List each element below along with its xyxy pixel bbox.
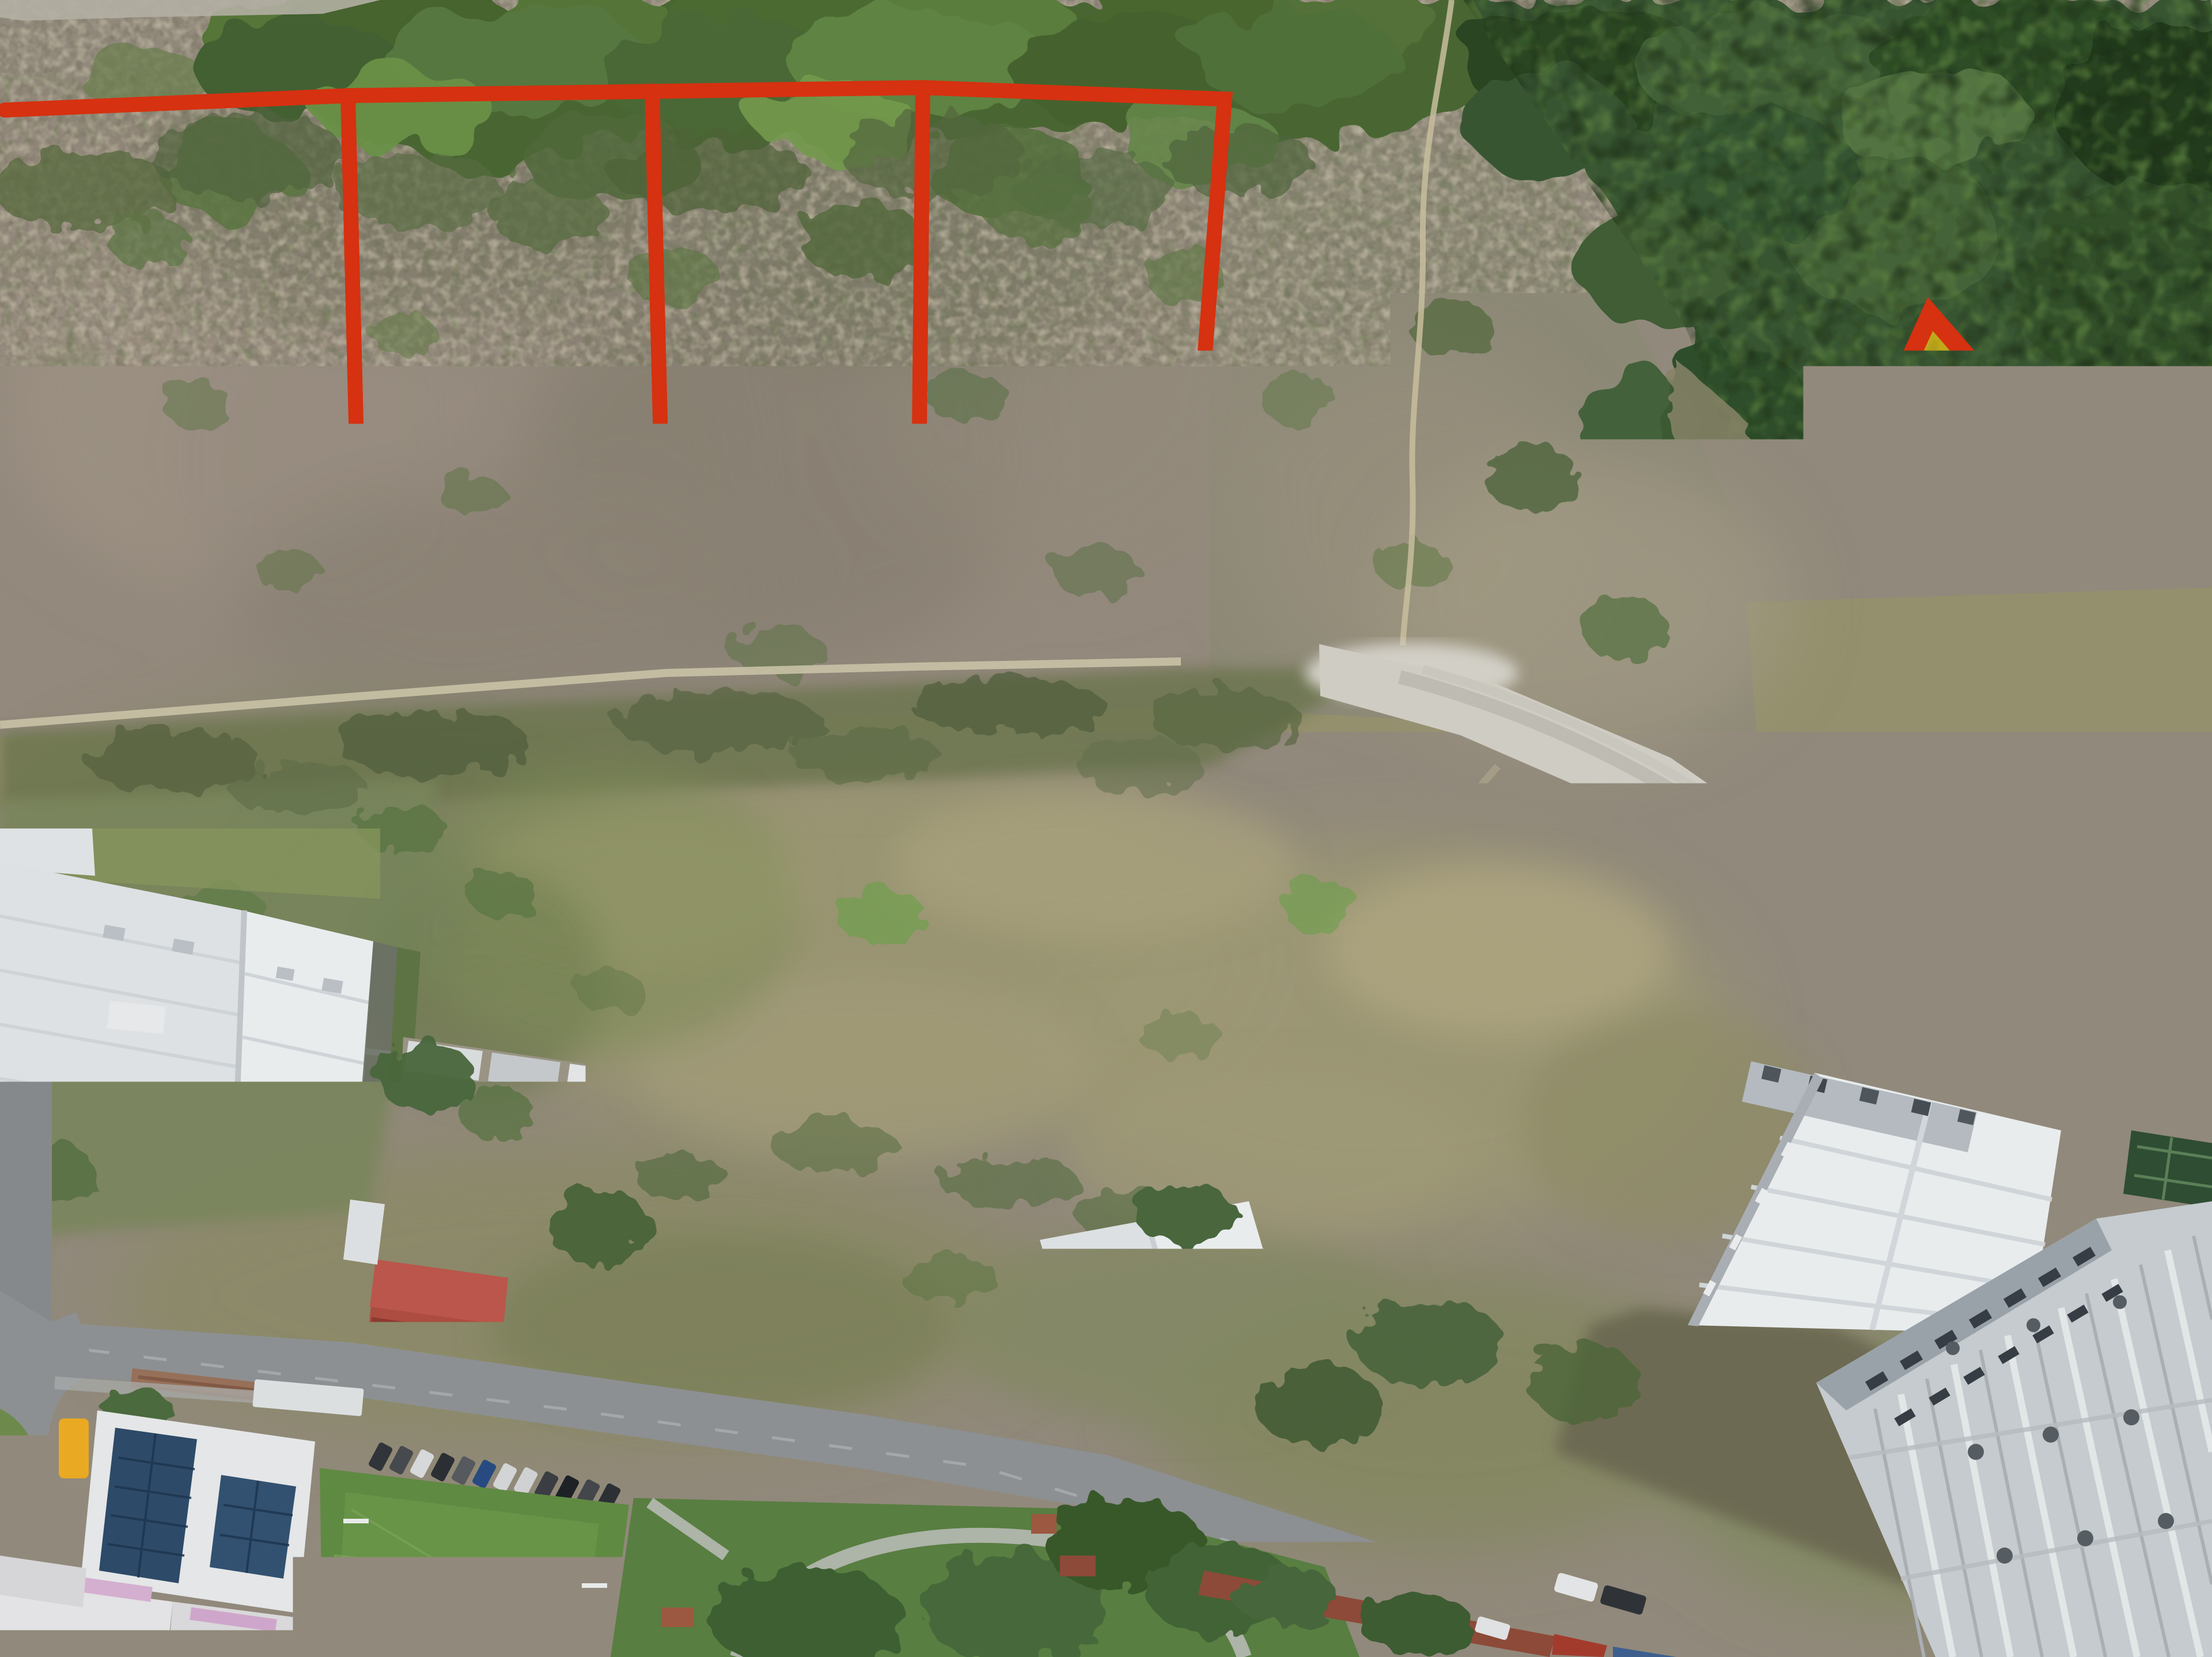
svg-text:Vivo: Vivo (789, 1197, 1297, 1480)
svg-text:Vivo: Vivo (1380, 848, 1887, 1130)
svg-text:Vivo: Vivo (789, 498, 1297, 781)
svg-text:Vivo: Vivo (199, 848, 706, 1130)
